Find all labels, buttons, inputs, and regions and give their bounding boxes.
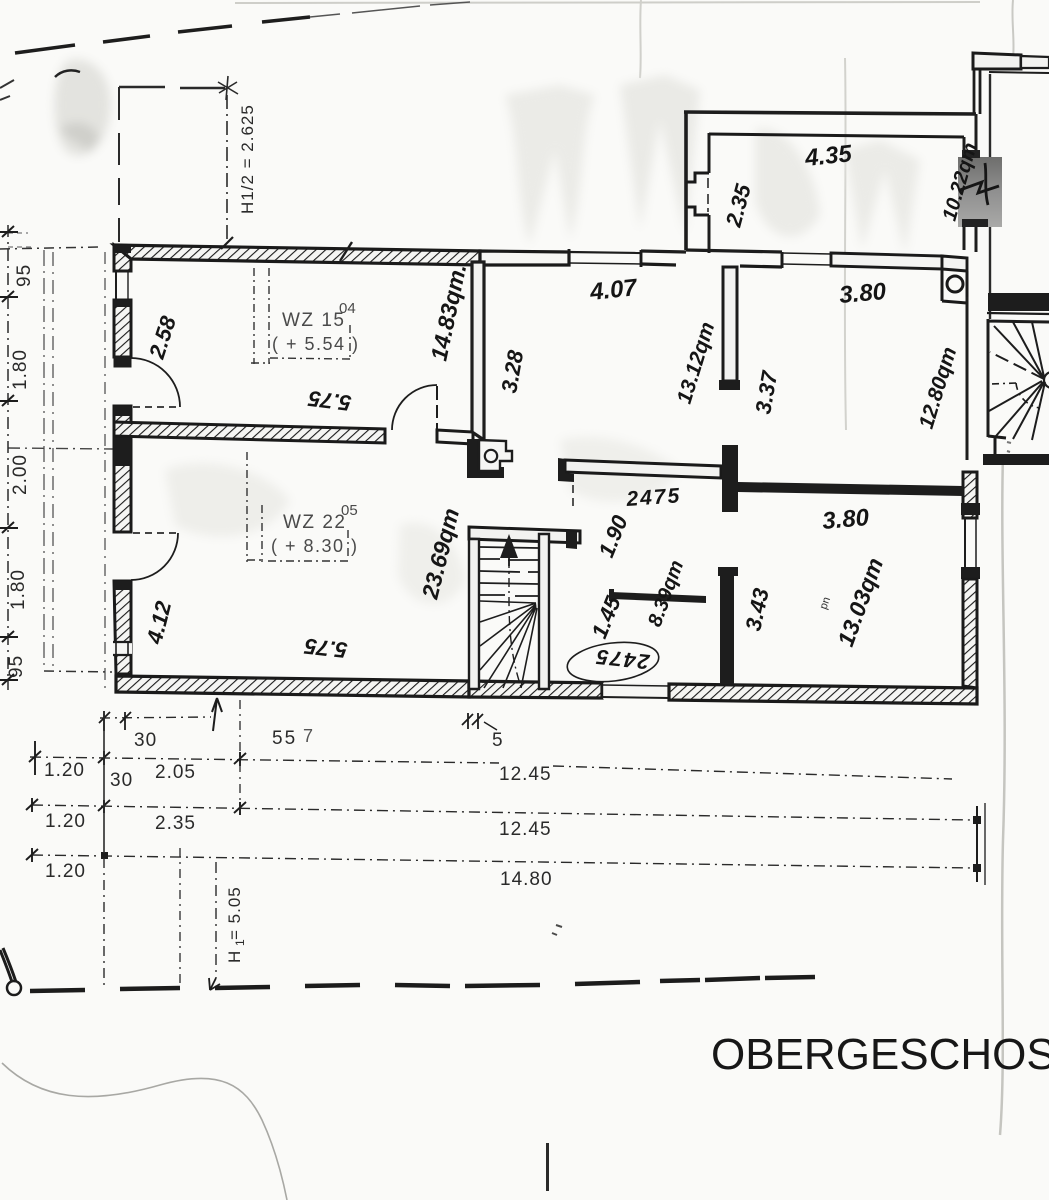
svg-text:30: 30 — [110, 770, 133, 791]
svg-text:WZ 22: WZ 22 — [283, 512, 346, 533]
svg-text:WZ 15: WZ 15 — [282, 310, 345, 331]
svg-text:95: 95 — [6, 655, 27, 678]
svg-text:4.07: 4.07 — [588, 274, 640, 306]
svg-text:2.05: 2.05 — [155, 762, 196, 783]
svg-text:1.20: 1.20 — [45, 861, 86, 882]
svg-text:7: 7 — [303, 726, 313, 746]
svg-text:3.80: 3.80 — [838, 278, 888, 309]
svg-text:( + 8.30 ): ( + 8.30 ) — [271, 536, 359, 556]
svg-text:5.75: 5.75 — [303, 633, 349, 662]
svg-text:= 5.05: = 5.05 — [225, 886, 244, 940]
svg-text:1.20: 1.20 — [44, 760, 85, 781]
svg-text:H: H — [225, 950, 244, 963]
svg-text:1.80: 1.80 — [8, 569, 29, 610]
svg-text:2475: 2475 — [625, 484, 682, 511]
svg-text:30: 30 — [134, 730, 157, 751]
svg-text:12.45: 12.45 — [499, 764, 552, 785]
svg-text:4.35: 4.35 — [803, 140, 854, 172]
svg-text:3.80: 3.80 — [821, 504, 871, 535]
svg-text:( + 5.54 ): ( + 5.54 ) — [272, 334, 360, 354]
svg-text:5.75: 5.75 — [306, 386, 352, 416]
svg-text:04: 04 — [339, 300, 356, 317]
svg-text:5: 5 — [492, 730, 504, 751]
svg-text:95: 95 — [14, 264, 35, 287]
svg-text:55: 55 — [272, 728, 297, 749]
svg-text:1.80: 1.80 — [10, 349, 31, 390]
svg-text:H1/2 = 2.625: H1/2 = 2.625 — [238, 104, 257, 214]
svg-text:05: 05 — [341, 502, 358, 519]
svg-text:14.80: 14.80 — [500, 869, 553, 890]
svg-text:1.20: 1.20 — [45, 811, 86, 832]
svg-text:2.00: 2.00 — [10, 454, 31, 495]
svg-text:OBERGESCHOSS: OBERGESCHOSS — [711, 1030, 1049, 1079]
svg-text:12.45: 12.45 — [499, 819, 552, 840]
svg-text:2.35: 2.35 — [155, 813, 196, 834]
